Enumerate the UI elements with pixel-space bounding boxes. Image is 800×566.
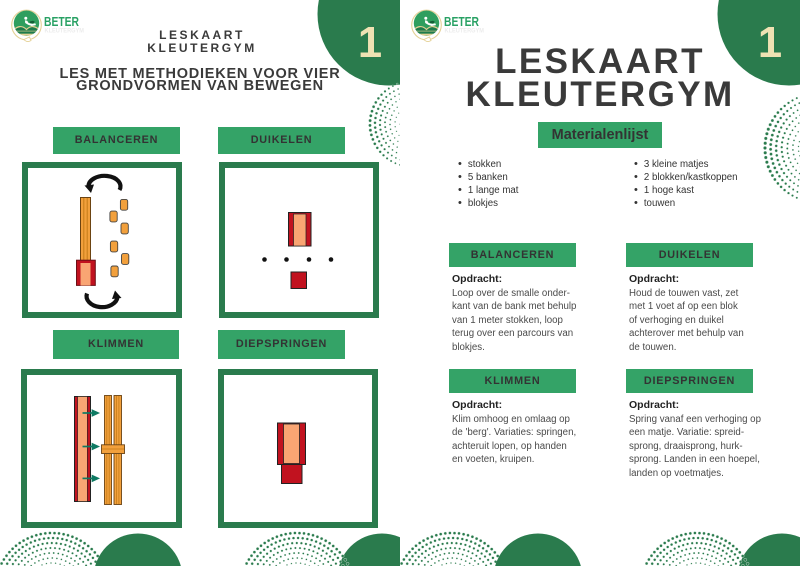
svg-text:KLEUTERGYM: KLEUTERGYM (445, 27, 485, 34)
